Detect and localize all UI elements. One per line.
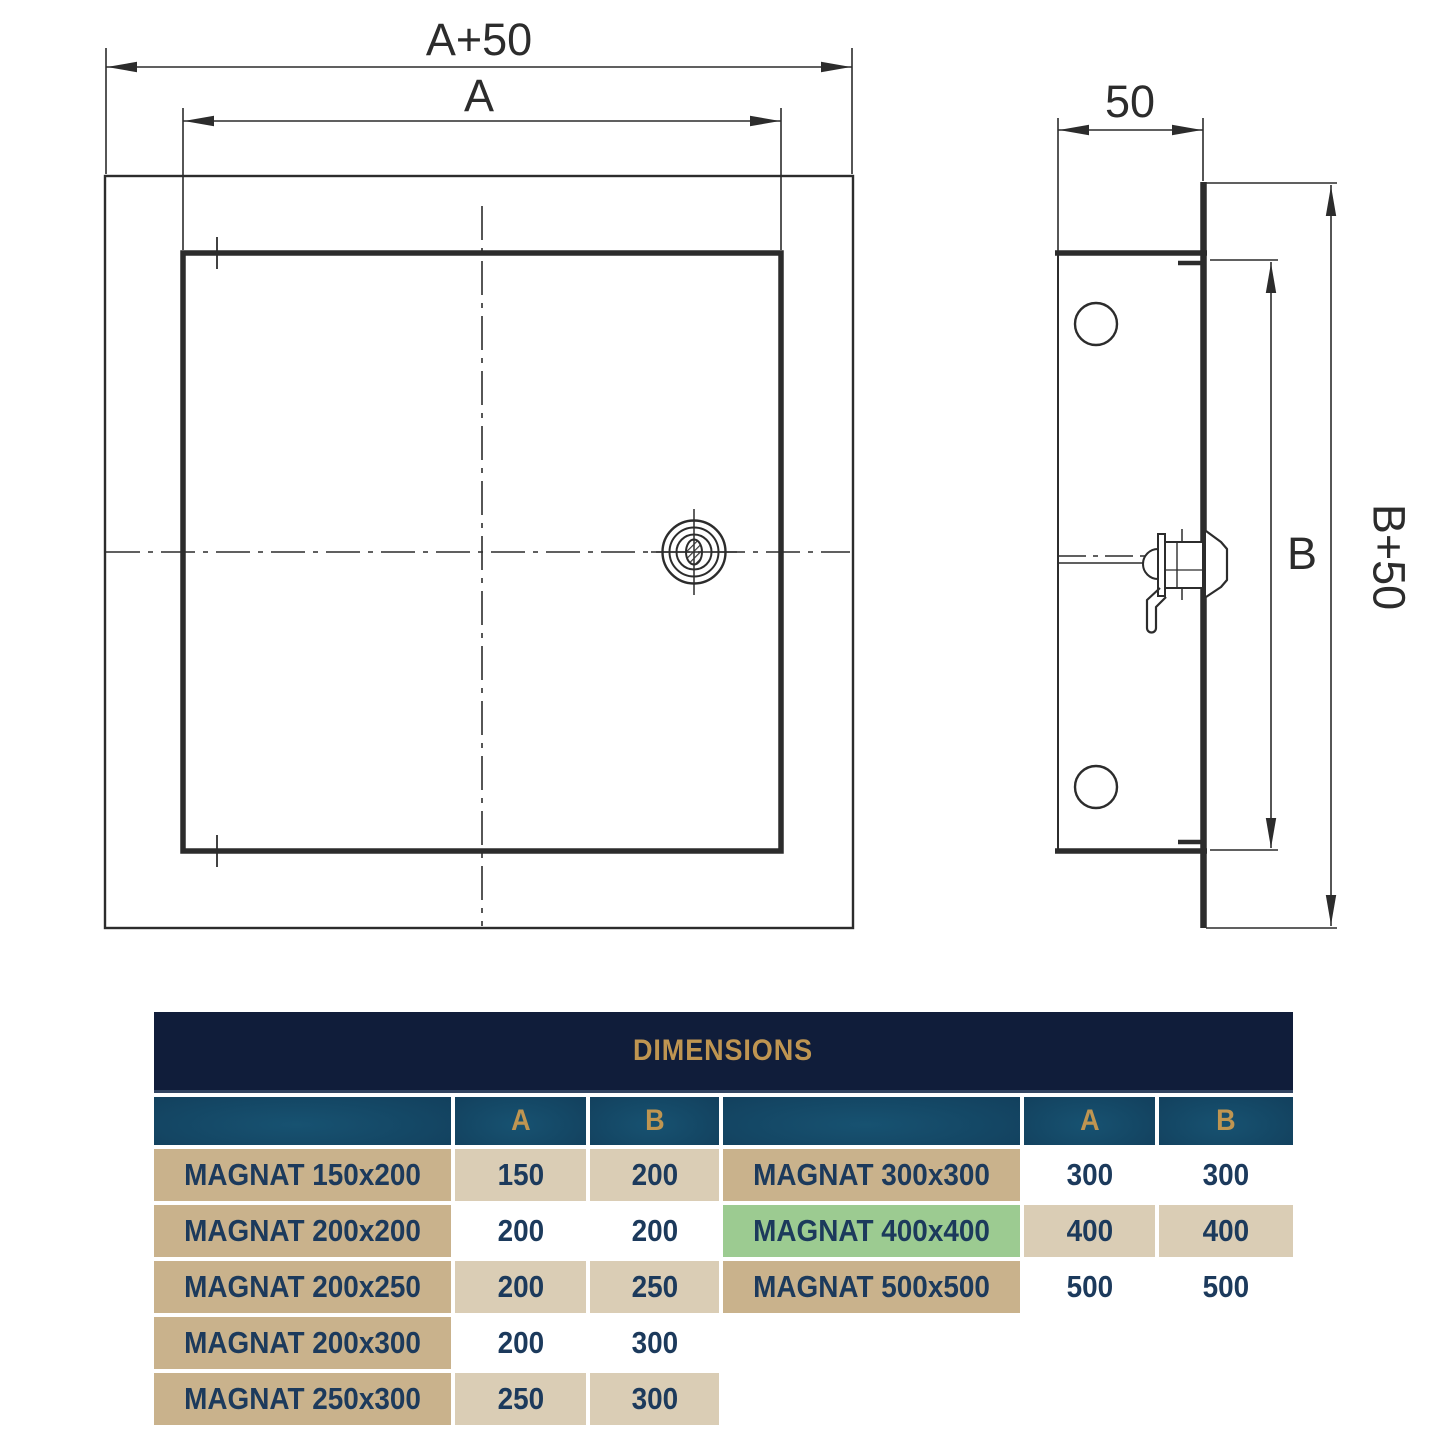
empty-cell xyxy=(1159,1373,1293,1425)
header-col-b-left: B xyxy=(590,1097,719,1145)
empty-cell xyxy=(1159,1317,1293,1369)
label-front-outer: A+50 xyxy=(426,14,532,65)
empty-cell xyxy=(1024,1373,1155,1425)
label-front-inner: A xyxy=(464,70,494,121)
value-cell-a: 300 xyxy=(1024,1149,1155,1201)
header-col-b-right: B xyxy=(1159,1097,1293,1145)
label-side-depth: 50 xyxy=(1105,76,1155,127)
value-cell-a: 200 xyxy=(455,1205,586,1257)
latch-cam-round xyxy=(1143,549,1158,579)
value-cell-b: 200 xyxy=(590,1205,719,1257)
header-col-a-right: A xyxy=(1024,1097,1155,1145)
value-cell-a: 200 xyxy=(455,1261,586,1313)
value-cell-b: 500 xyxy=(1159,1261,1293,1313)
product-cell-highlighted: MAGNAT 400x400 xyxy=(723,1205,1020,1257)
product-cell: MAGNAT 250x300 xyxy=(154,1373,451,1425)
technical-drawing: A+50 A xyxy=(0,0,1445,1000)
latch-plate xyxy=(1158,534,1165,596)
page: A+50 A xyxy=(0,0,1445,1445)
value-cell-b: 250 xyxy=(590,1261,719,1313)
value-cell-b: 200 xyxy=(590,1149,719,1201)
value-cell-a: 400 xyxy=(1024,1205,1155,1257)
latch-body xyxy=(1165,542,1203,588)
product-cell: MAGNAT 500x500 xyxy=(723,1261,1020,1313)
dimensions-table: DIMENSIONS A B A B MAGNAT 150x200 150 20… xyxy=(154,1012,1293,1425)
side-view: 50 B B+50 xyxy=(1055,76,1414,928)
header-product-right xyxy=(723,1097,1020,1145)
product-cell: MAGNAT 200x250 xyxy=(154,1261,451,1313)
cam-lock-front xyxy=(651,509,737,595)
mounting-hole-bottom xyxy=(1075,766,1117,808)
value-cell-a: 500 xyxy=(1024,1261,1155,1313)
mounting-hole-top xyxy=(1075,303,1117,345)
product-cell: MAGNAT 200x300 xyxy=(154,1317,451,1369)
front-view: A+50 A xyxy=(105,14,853,928)
keyhole xyxy=(686,540,702,565)
value-cell-b: 300 xyxy=(590,1317,719,1369)
product-cell: MAGNAT 150x200 xyxy=(154,1149,451,1201)
value-cell-b: 300 xyxy=(590,1373,719,1425)
header-col-a-left: A xyxy=(455,1097,586,1145)
value-cell-b: 400 xyxy=(1159,1205,1293,1257)
label-side-outer: B+50 xyxy=(1363,504,1414,610)
value-cell-a: 150 xyxy=(455,1149,586,1201)
empty-cell xyxy=(723,1373,1020,1425)
empty-cell xyxy=(1024,1317,1155,1369)
product-cell: MAGNAT 200x200 xyxy=(154,1205,451,1257)
empty-cell xyxy=(723,1317,1020,1369)
table-grid: A B A B MAGNAT 150x200 150 200 MAGNAT 30… xyxy=(154,1097,1293,1425)
header-product-left xyxy=(154,1097,451,1145)
product-cell: MAGNAT 300x300 xyxy=(723,1149,1020,1201)
label-side-inner: B xyxy=(1287,528,1317,579)
value-cell-b: 300 xyxy=(1159,1149,1293,1201)
value-cell-a: 200 xyxy=(455,1317,586,1369)
table-title: DIMENSIONS xyxy=(154,1012,1293,1093)
value-cell-a: 250 xyxy=(455,1373,586,1425)
dimension-side-depth: 50 xyxy=(1058,76,1203,253)
table-title-text: DIMENSIONS xyxy=(633,1034,813,1068)
latch-knob xyxy=(1206,531,1227,597)
